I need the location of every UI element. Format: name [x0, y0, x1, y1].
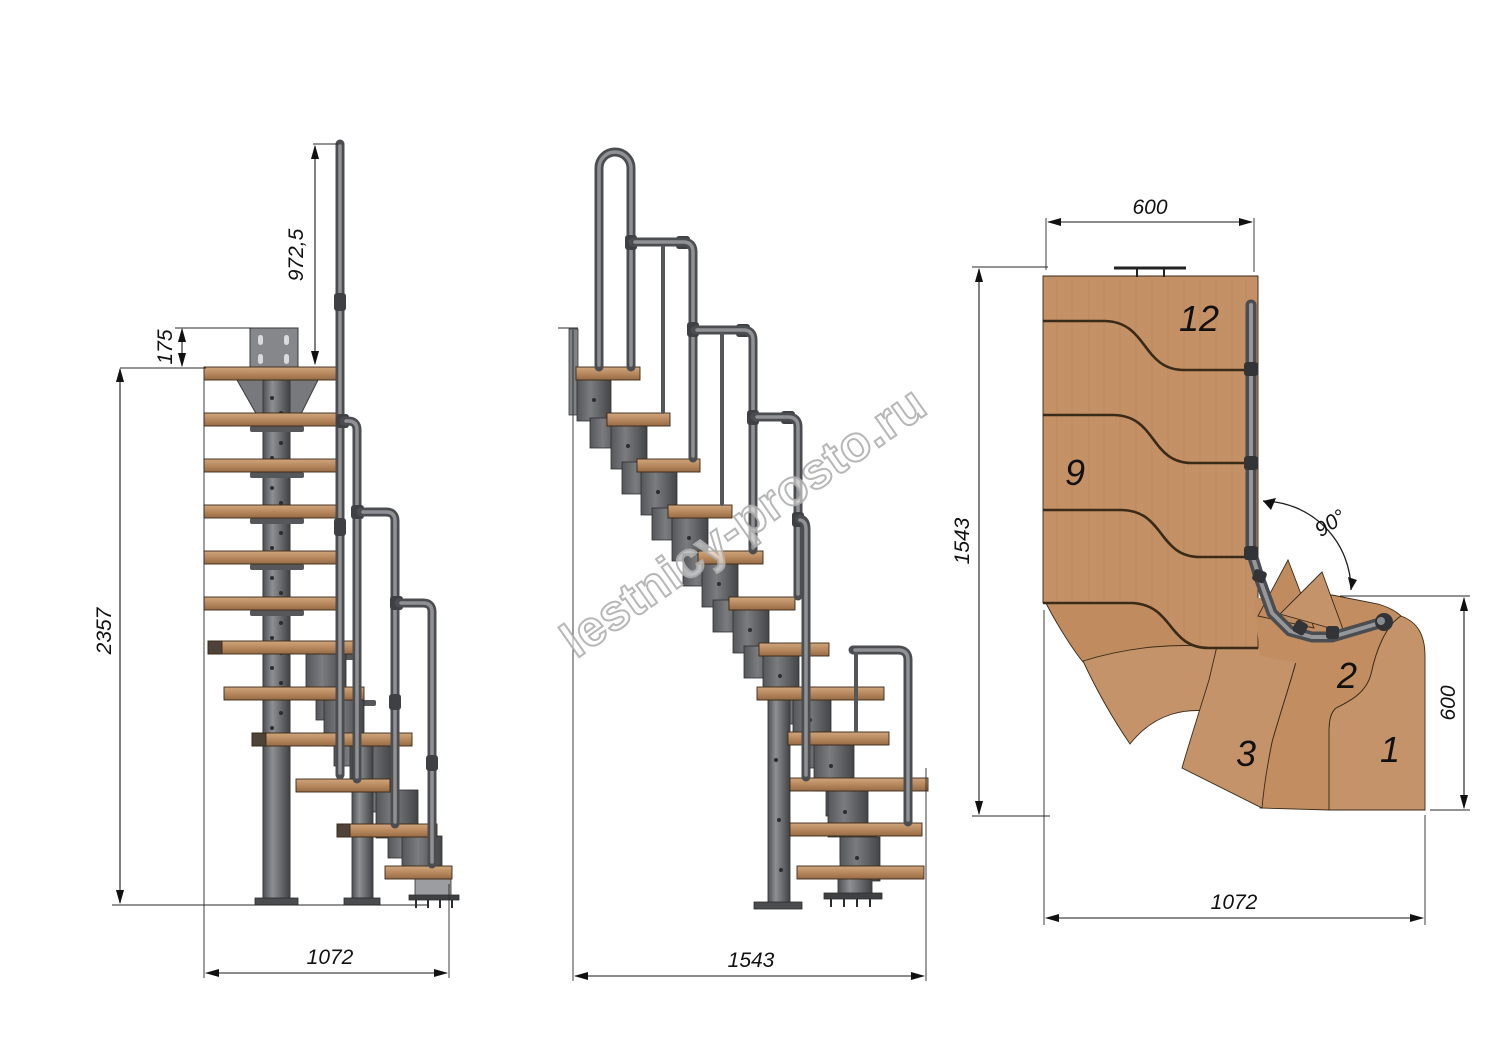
svg-text:1072: 1072	[1211, 891, 1258, 914]
svg-text:600: 600	[1437, 685, 1460, 720]
svg-text:3: 3	[1236, 733, 1256, 774]
svg-text:972,5: 972,5	[285, 228, 308, 281]
svg-text:1543: 1543	[951, 517, 974, 564]
svg-text:1072: 1072	[307, 946, 354, 969]
svg-text:600: 600	[1132, 196, 1167, 219]
svg-text:9: 9	[1065, 452, 1085, 493]
svg-text:1: 1	[1380, 729, 1400, 770]
svg-text:1543: 1543	[728, 949, 775, 972]
svg-text:2: 2	[1336, 655, 1357, 696]
svg-text:2357: 2357	[93, 606, 116, 655]
svg-text:12: 12	[1179, 298, 1219, 339]
svg-text:175: 175	[154, 329, 177, 364]
